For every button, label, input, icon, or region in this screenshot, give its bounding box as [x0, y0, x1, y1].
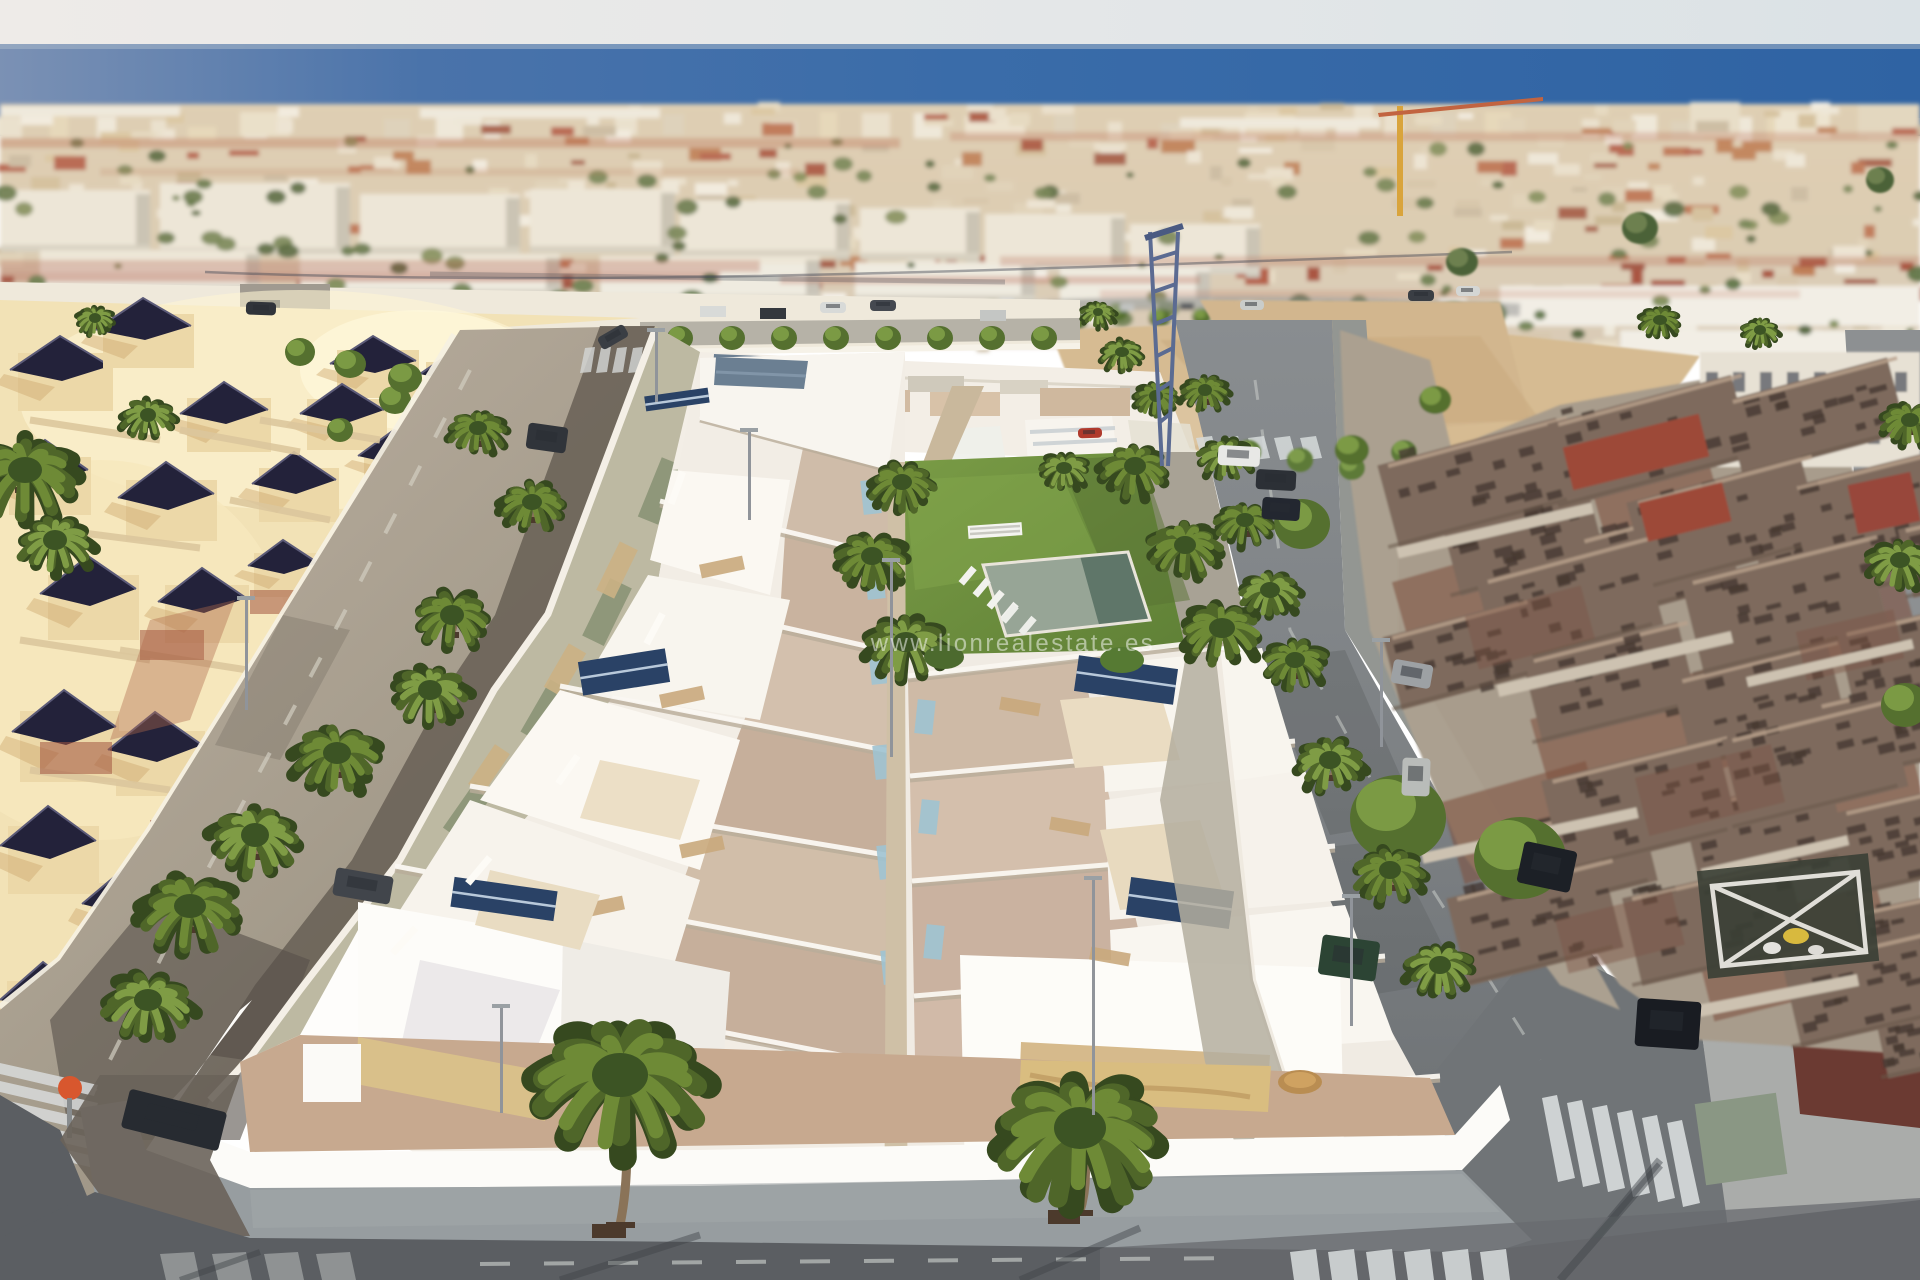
svg-text:www.lionrealestate.es: www.lionrealestate.es [870, 630, 1156, 657]
